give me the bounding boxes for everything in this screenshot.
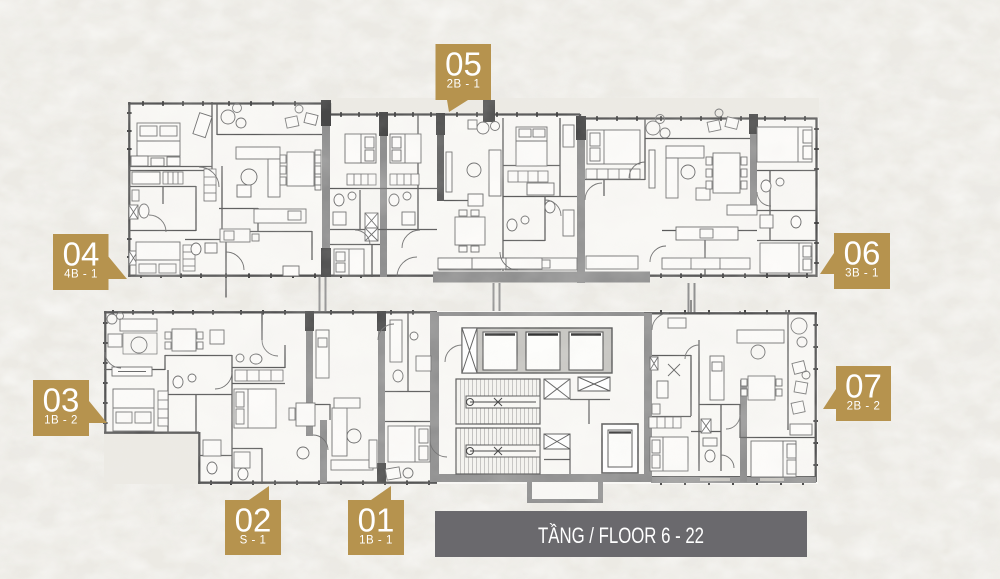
svg-text:2B - 2: 2B - 2: [847, 401, 881, 413]
svg-text:06: 06: [844, 235, 881, 272]
svg-text:4B - 1: 4B - 1: [64, 269, 98, 281]
svg-text:1B - 1: 1B - 1: [359, 535, 393, 547]
svg-text:07: 07: [845, 368, 882, 405]
svg-text:02: 02: [235, 502, 272, 539]
svg-text:03: 03: [43, 382, 80, 419]
svg-text:2B - 1: 2B - 1: [447, 79, 481, 91]
svg-text:04: 04: [63, 236, 100, 273]
svg-text:S - 1: S - 1: [240, 535, 267, 547]
svg-text:05: 05: [445, 46, 482, 83]
svg-text:3B - 1: 3B - 1: [845, 268, 879, 280]
svg-text:01: 01: [358, 502, 395, 539]
svg-text:TẦNG / FLOOR 6 - 22: TẦNG / FLOOR 6 - 22: [538, 523, 704, 548]
svg-text:1B - 2: 1B - 2: [44, 415, 78, 427]
